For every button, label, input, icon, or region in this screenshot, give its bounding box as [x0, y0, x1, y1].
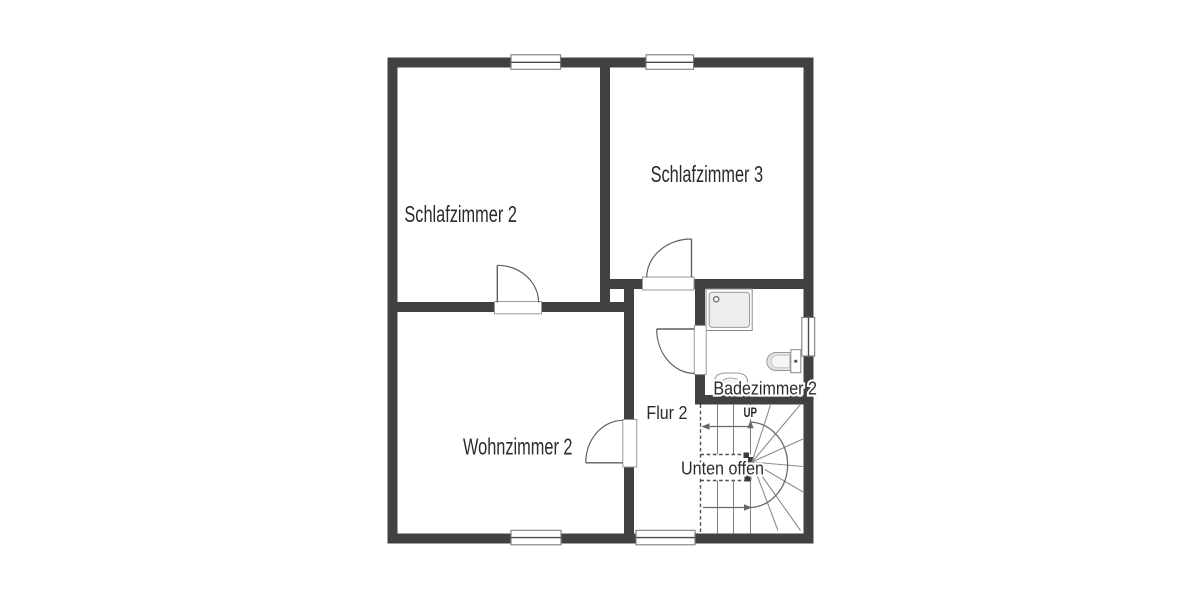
svg-text:Wohnzimmer 2: Wohnzimmer 2 — [463, 433, 573, 459]
svg-text:UP: UP — [744, 405, 758, 420]
svg-text:Badezimmer 2: Badezimmer 2 — [713, 379, 817, 399]
svg-text:Schlafzimmer 2: Schlafzimmer 2 — [404, 201, 517, 227]
svg-text:Schlafzimmer 3: Schlafzimmer 3 — [651, 161, 764, 187]
svg-text:Flur 2: Flur 2 — [646, 403, 687, 423]
svg-text:Unten offen: Unten offen — [681, 458, 764, 479]
